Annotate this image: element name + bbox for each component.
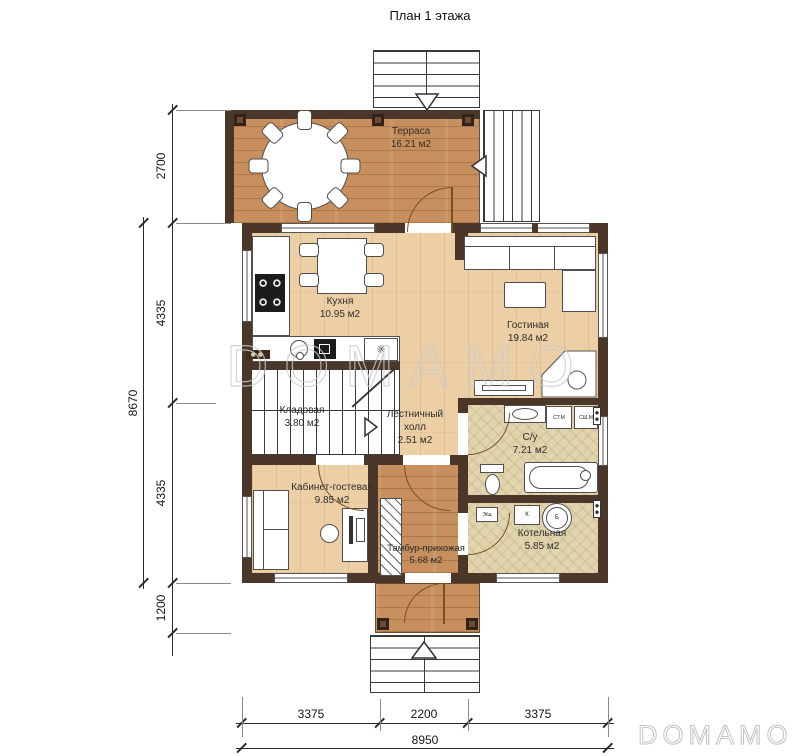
office-label: Кабинет-гостевая 9.85 м2 xyxy=(276,481,388,507)
extension-line xyxy=(468,699,469,731)
sofa-back-line xyxy=(464,246,596,247)
exterior-stairs-side xyxy=(483,110,540,222)
dim-8950-total: 8950 xyxy=(395,733,455,747)
porch-post xyxy=(377,618,389,630)
terrace-door-leaf xyxy=(451,187,453,233)
window-office-left xyxy=(242,496,252,558)
kitchen-oven-door xyxy=(319,344,330,354)
stair-hall-label: Лестничный холл 2.51 м2 xyxy=(385,408,445,447)
sofa-cushion-line xyxy=(554,246,555,270)
kitchen-name: Кухня xyxy=(295,295,385,308)
dining-chair xyxy=(341,159,361,174)
sofa xyxy=(464,236,596,270)
entrance-door-gap xyxy=(405,573,451,583)
window-boiler-bottom xyxy=(496,573,560,583)
floor-plan-canvas: План 1 этажа Терраса 16.21 м2 xyxy=(0,0,800,756)
extension-line xyxy=(608,697,609,737)
boiler-label: Котельная 5.85 м2 xyxy=(498,527,586,553)
porch-post xyxy=(466,618,478,630)
sofa-cushion-line xyxy=(509,246,510,270)
bathroom-label: С/у 7.21 м2 xyxy=(495,431,565,457)
vestibule-label: Тамбур-прихожая 5.68 м2 xyxy=(378,543,474,568)
extension-line xyxy=(176,583,231,584)
pc-tower xyxy=(356,518,365,542)
dim-2200: 2200 xyxy=(394,707,454,721)
terrace-label: Терраса 16.21 м2 xyxy=(351,125,471,151)
terrace-post xyxy=(234,114,246,126)
dim-1200: 1200 xyxy=(154,578,168,638)
vestibule-door-gap xyxy=(403,455,450,465)
dining-chair xyxy=(249,159,269,174)
boiler-area: 5.85 м2 xyxy=(498,540,586,553)
page-title: План 1 этажа xyxy=(330,8,530,23)
terrace-name: Терраса xyxy=(351,125,471,138)
office-sofa-cushion-line xyxy=(263,529,289,530)
kitchen-chair xyxy=(299,273,319,287)
entrance-door-leaf xyxy=(443,583,445,624)
washing-machine-label: СТ.М xyxy=(546,406,572,429)
kitchen-table xyxy=(317,238,367,294)
dim-2700: 2700 xyxy=(154,136,168,196)
corner-desk xyxy=(541,350,597,398)
office-door-gap xyxy=(316,455,364,465)
stairs-down-arrow-icon xyxy=(414,92,440,112)
dimension-line-left-total xyxy=(143,217,144,589)
boiler-name: Котельная xyxy=(498,527,586,540)
living-name: Гостиная xyxy=(482,319,574,332)
window-office-bottom xyxy=(274,573,348,583)
stairs-left-arrow-icon xyxy=(468,154,488,178)
extension-line xyxy=(242,697,243,737)
dim-4335-upper: 4335 xyxy=(154,283,168,343)
dim-3375-right: 3375 xyxy=(508,707,568,721)
extension-line xyxy=(176,223,231,224)
terrace-wall-top xyxy=(225,110,480,119)
dining-chair xyxy=(297,202,312,222)
kitchen-chair xyxy=(364,273,384,287)
vestibule-area: 5.68 м2 xyxy=(378,555,474,567)
dimension-line-left xyxy=(172,104,173,656)
watermark-corner: DOMAMO xyxy=(638,720,798,751)
extension-line xyxy=(176,633,231,634)
dimension-line-bottom-total xyxy=(236,748,614,749)
boiler-unit-label: К xyxy=(514,505,540,525)
office-area: 9.85 м2 xyxy=(276,494,388,507)
kitchen-chair xyxy=(299,243,319,257)
bathroom-name: С/у xyxy=(495,431,565,444)
office-chair xyxy=(320,524,339,543)
dining-chair xyxy=(297,110,312,130)
bathroom-door-gap xyxy=(458,413,468,455)
stair-hall-name: Лестничный холл xyxy=(385,408,445,434)
office-name: Кабинет-гостевая xyxy=(276,481,388,494)
vestibule-name: Тамбур-прихожая xyxy=(378,543,474,555)
toilet-bowl xyxy=(485,474,500,495)
stairs-right-arrow-icon xyxy=(363,416,379,438)
sofa-chaise xyxy=(562,270,596,312)
fridge: ✳ xyxy=(364,338,398,361)
office-sofa-back-line xyxy=(263,490,264,570)
living-area: 19.84 м2 xyxy=(482,332,574,345)
wall-vent xyxy=(593,407,601,425)
window-living-right xyxy=(598,253,608,338)
stairs-up-arrow-icon xyxy=(410,640,438,660)
toilet-tank xyxy=(480,464,504,473)
window-kitchen-terrace xyxy=(281,223,375,233)
pantry-name: Кладовая xyxy=(262,404,342,417)
dim-4335-lower: 4335 xyxy=(154,463,168,523)
terrace-wall-left xyxy=(225,110,234,223)
living-label: Гостиная 19.84 м2 xyxy=(482,319,574,345)
extension-line xyxy=(176,110,231,111)
bathroom-sink-basin xyxy=(512,408,538,420)
tv-unit xyxy=(482,385,526,391)
pantry-label: Кладовая 3.80 м2 xyxy=(262,404,342,430)
stair-hall-area: 2.51 м2 xyxy=(385,434,445,447)
window-kitchen-left xyxy=(242,250,252,322)
coffee-table xyxy=(504,282,546,308)
kitchen-sink-tap xyxy=(296,352,304,360)
kitchen-outlet-box xyxy=(246,350,270,359)
dimension-line-bottom xyxy=(236,723,614,724)
extension-line xyxy=(380,699,381,731)
window-mullion xyxy=(532,223,538,233)
stove-cooktop xyxy=(255,274,285,312)
terrace-area: 16.21 м2 xyxy=(351,138,471,151)
dim-8670-total: 8670 xyxy=(126,373,140,433)
extension-line xyxy=(176,403,216,404)
electrical-panel-label: Э/щ xyxy=(476,507,498,522)
wall-bathroom-boiler xyxy=(468,495,598,503)
kitchen-chair xyxy=(364,243,384,257)
bathroom-area: 7.21 м2 xyxy=(495,444,565,457)
pantry-area: 3.80 м2 xyxy=(262,417,342,430)
kitchen-label: Кухня 10.95 м2 xyxy=(295,295,385,321)
bathtub-tap xyxy=(580,470,591,481)
wall-living-bathroom xyxy=(458,398,598,405)
dim-3375-left: 3375 xyxy=(281,707,341,721)
wall-vent xyxy=(593,500,601,518)
wall-kitchen-stairs xyxy=(252,362,400,369)
kitchen-area: 10.95 м2 xyxy=(295,308,385,321)
monitor xyxy=(349,516,353,544)
